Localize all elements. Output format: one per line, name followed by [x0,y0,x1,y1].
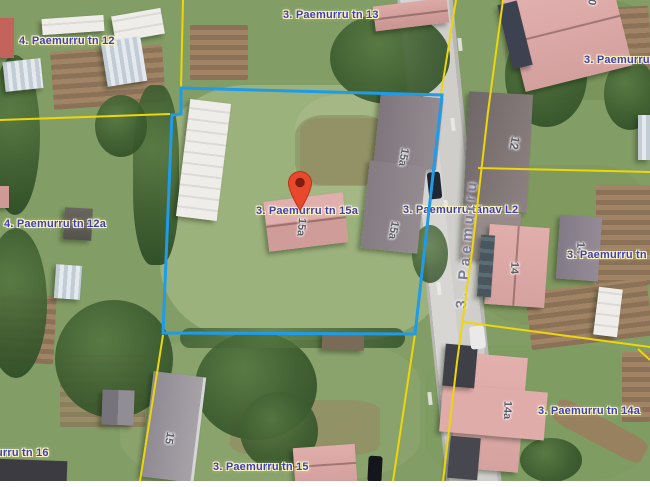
address-label-tn13: 3. Paemurru tn 13 [283,9,379,21]
building-house-14a-wing [439,384,548,441]
address-label-tn12: 4. Paemurru tn 12 [19,35,115,47]
car [367,456,382,481]
hedge [180,328,405,348]
building-wing-dark [442,344,478,389]
greenhouse [54,264,82,300]
greenhouse [42,15,105,35]
house-number: 15 [162,431,176,445]
garden-rows [190,25,248,80]
house-number: 14a [501,401,514,420]
aerial-map[interactable]: 10 12 14 14 14a 15 15a 15a 15a 4. Paemur… [0,0,650,481]
address-label-tn14: 3. Paemurru tn 14 [567,249,650,261]
building-small [0,186,9,208]
van [469,325,486,349]
shed [101,389,134,425]
house-number: 15a [294,217,308,236]
tree [95,95,147,157]
building-roof-red [0,18,14,58]
garden-rows [596,185,650,285]
address-label-tn16: murru tn 16 [0,447,49,459]
house-number: 14 [508,262,520,275]
address-label-tn14a: 3. Paemurru tn 14a [538,405,640,417]
building-roof-dark [0,459,67,481]
address-label-tn15: 3. Paemurru tn 15 [213,461,309,473]
building-wing-dark [447,436,481,480]
location-pin-icon[interactable] [287,170,313,212]
bottom-margin [0,481,650,487]
address-label-tn12-right: 3. Paemurru tn [584,54,650,66]
shed [322,332,365,350]
road-marking [457,38,462,51]
tree [520,438,582,481]
greenhouse [638,115,650,160]
address-label-tn12a: 4. Paemurru tn 12a [4,218,106,230]
car [427,171,443,199]
greenhouse [3,58,44,92]
house-number: 12 [507,135,523,151]
map-screenshot: 10 12 14 14 14a 15 15a 15a 15a 4. Paemur… [0,0,650,487]
